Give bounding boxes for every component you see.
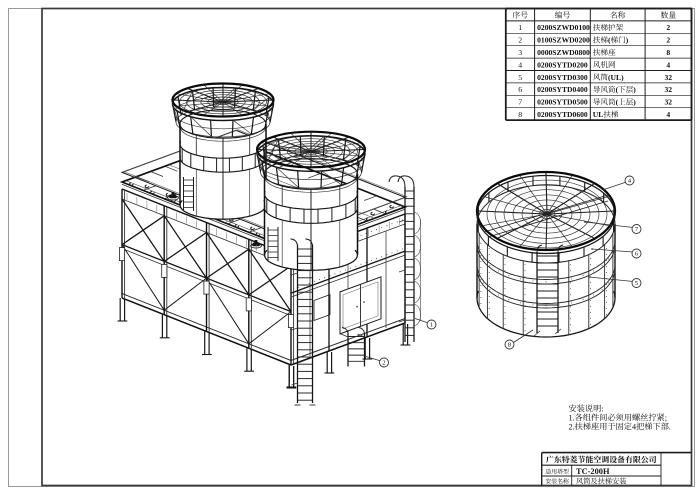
svg-text::: : bbox=[601, 404, 603, 413]
svg-text:1: 1 bbox=[430, 322, 433, 329]
svg-text:2: 2 bbox=[382, 360, 385, 367]
svg-text:0200SYTD0400: 0200SYTD0400 bbox=[537, 85, 588, 94]
svg-text:32: 32 bbox=[665, 73, 673, 82]
svg-text:0000SZWD0800: 0000SZWD0800 bbox=[537, 48, 590, 57]
svg-text:;: ; bbox=[665, 413, 667, 422]
svg-text:4: 4 bbox=[666, 60, 670, 69]
svg-text:4: 4 bbox=[632, 422, 636, 431]
svg-text:.: . bbox=[669, 422, 671, 431]
svg-text:8: 8 bbox=[666, 48, 670, 57]
svg-text:0200SZWD0100: 0200SZWD0100 bbox=[537, 23, 590, 32]
svg-text:8: 8 bbox=[508, 342, 511, 349]
svg-text:2.: 2. bbox=[569, 422, 575, 431]
svg-text:4: 4 bbox=[666, 110, 670, 119]
svg-text:3: 3 bbox=[518, 48, 522, 57]
svg-text:8: 8 bbox=[518, 110, 522, 119]
svg-text:2: 2 bbox=[518, 36, 522, 45]
svg-text:UL: UL bbox=[593, 110, 604, 119]
svg-text:4: 4 bbox=[518, 60, 522, 69]
svg-text:6: 6 bbox=[518, 85, 522, 94]
svg-text:5: 5 bbox=[635, 280, 638, 287]
svg-text:1: 1 bbox=[518, 23, 522, 32]
svg-text:0200SYTD0500: 0200SYTD0500 bbox=[537, 98, 588, 107]
svg-text:0200SYTD0300: 0200SYTD0300 bbox=[537, 73, 588, 82]
svg-text:TC-200H: TC-200H bbox=[576, 467, 610, 476]
svg-text:0200SYTD0200: 0200SYTD0200 bbox=[537, 60, 588, 69]
svg-text:2: 2 bbox=[666, 36, 670, 45]
svg-text:32: 32 bbox=[665, 98, 673, 107]
svg-text:1.: 1. bbox=[569, 413, 575, 422]
svg-text:0100SZWD0200: 0100SZWD0200 bbox=[537, 36, 590, 45]
svg-text:(UL): (UL) bbox=[608, 73, 624, 82]
svg-text:2: 2 bbox=[666, 23, 670, 32]
svg-text:6: 6 bbox=[635, 251, 638, 258]
svg-text:32: 32 bbox=[665, 85, 673, 94]
svg-text:0200SYTD0600: 0200SYTD0600 bbox=[537, 110, 588, 119]
svg-text:5: 5 bbox=[518, 73, 522, 82]
svg-text:7: 7 bbox=[518, 98, 522, 107]
